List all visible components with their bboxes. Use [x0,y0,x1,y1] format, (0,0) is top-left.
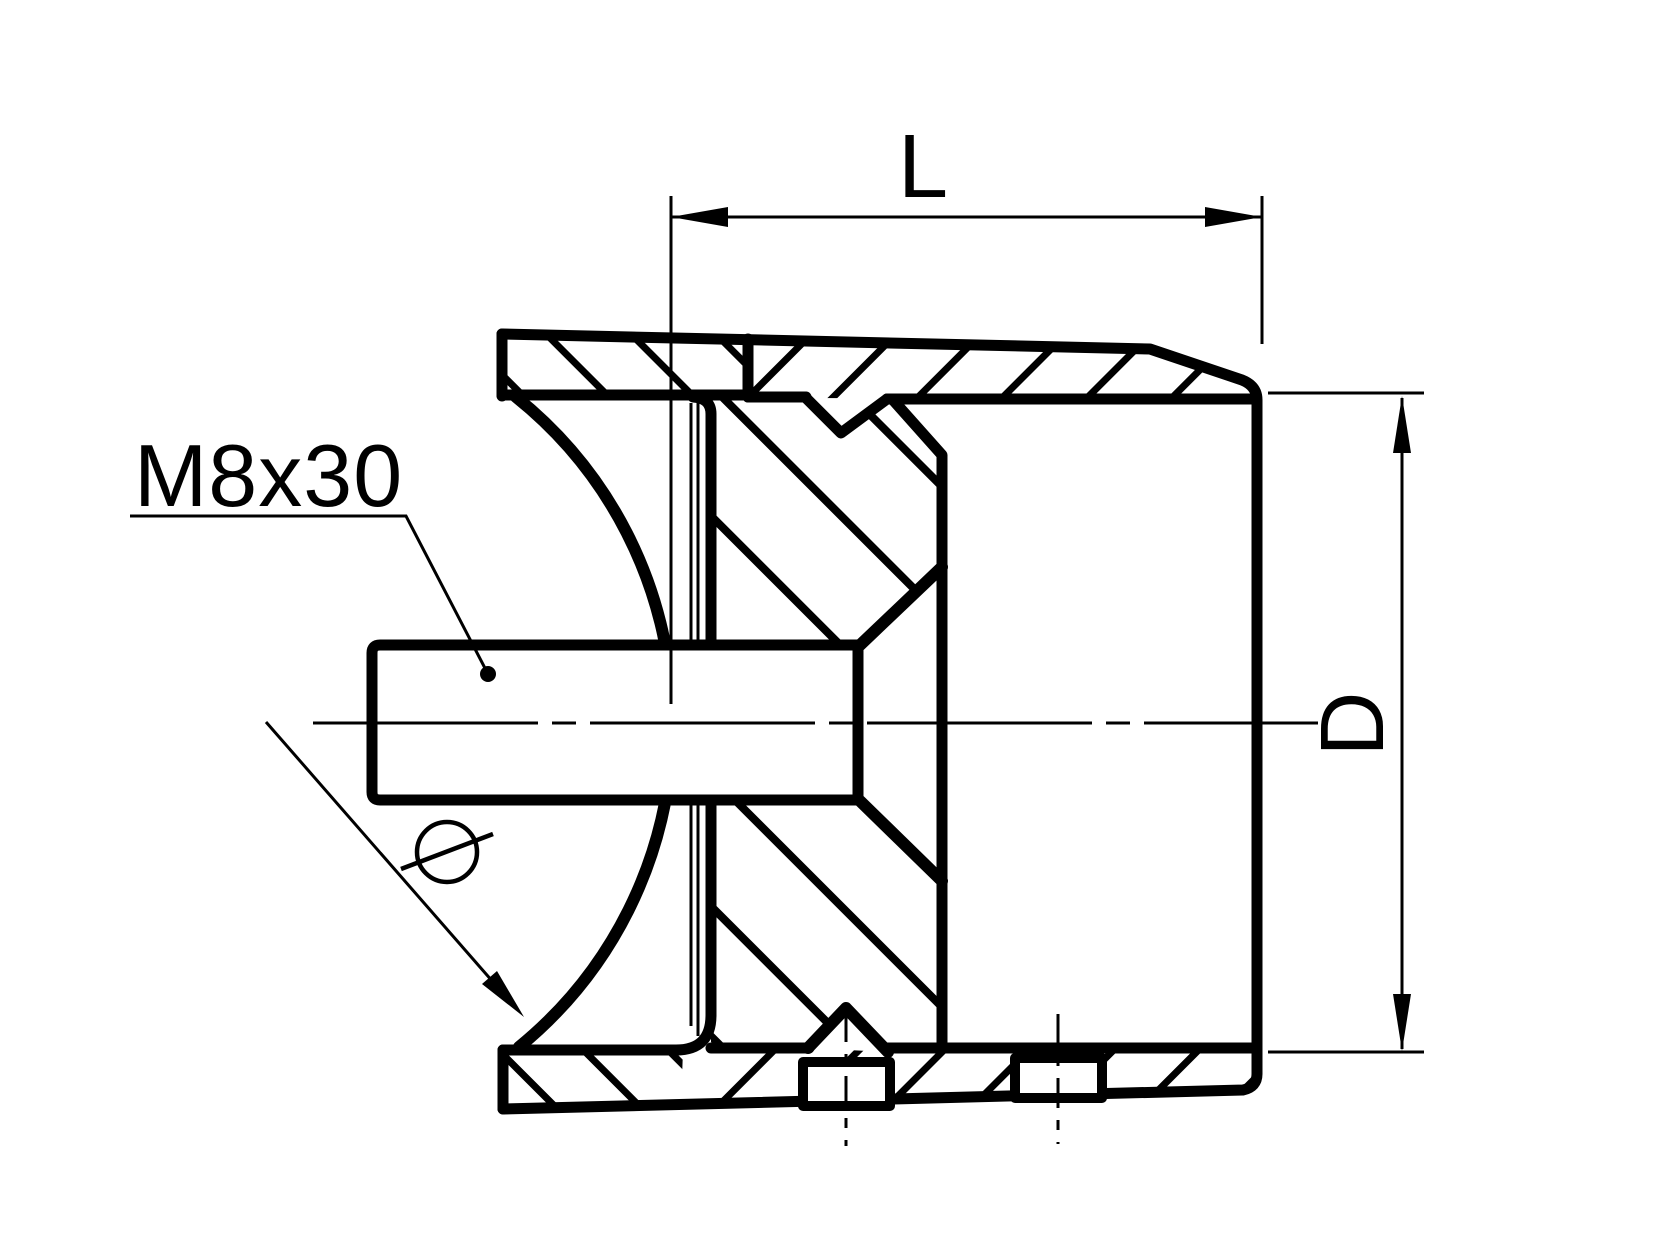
length-dimension-label: L [898,117,948,217]
drawing-page: L D M8x30 [0,0,1680,1260]
diameter-dimension-label: D [1303,692,1403,757]
spec-leader-dot [480,666,496,682]
thread-spec-label: M8x30 [134,426,403,525]
technical-drawing: L D M8x30 [0,0,1680,1260]
